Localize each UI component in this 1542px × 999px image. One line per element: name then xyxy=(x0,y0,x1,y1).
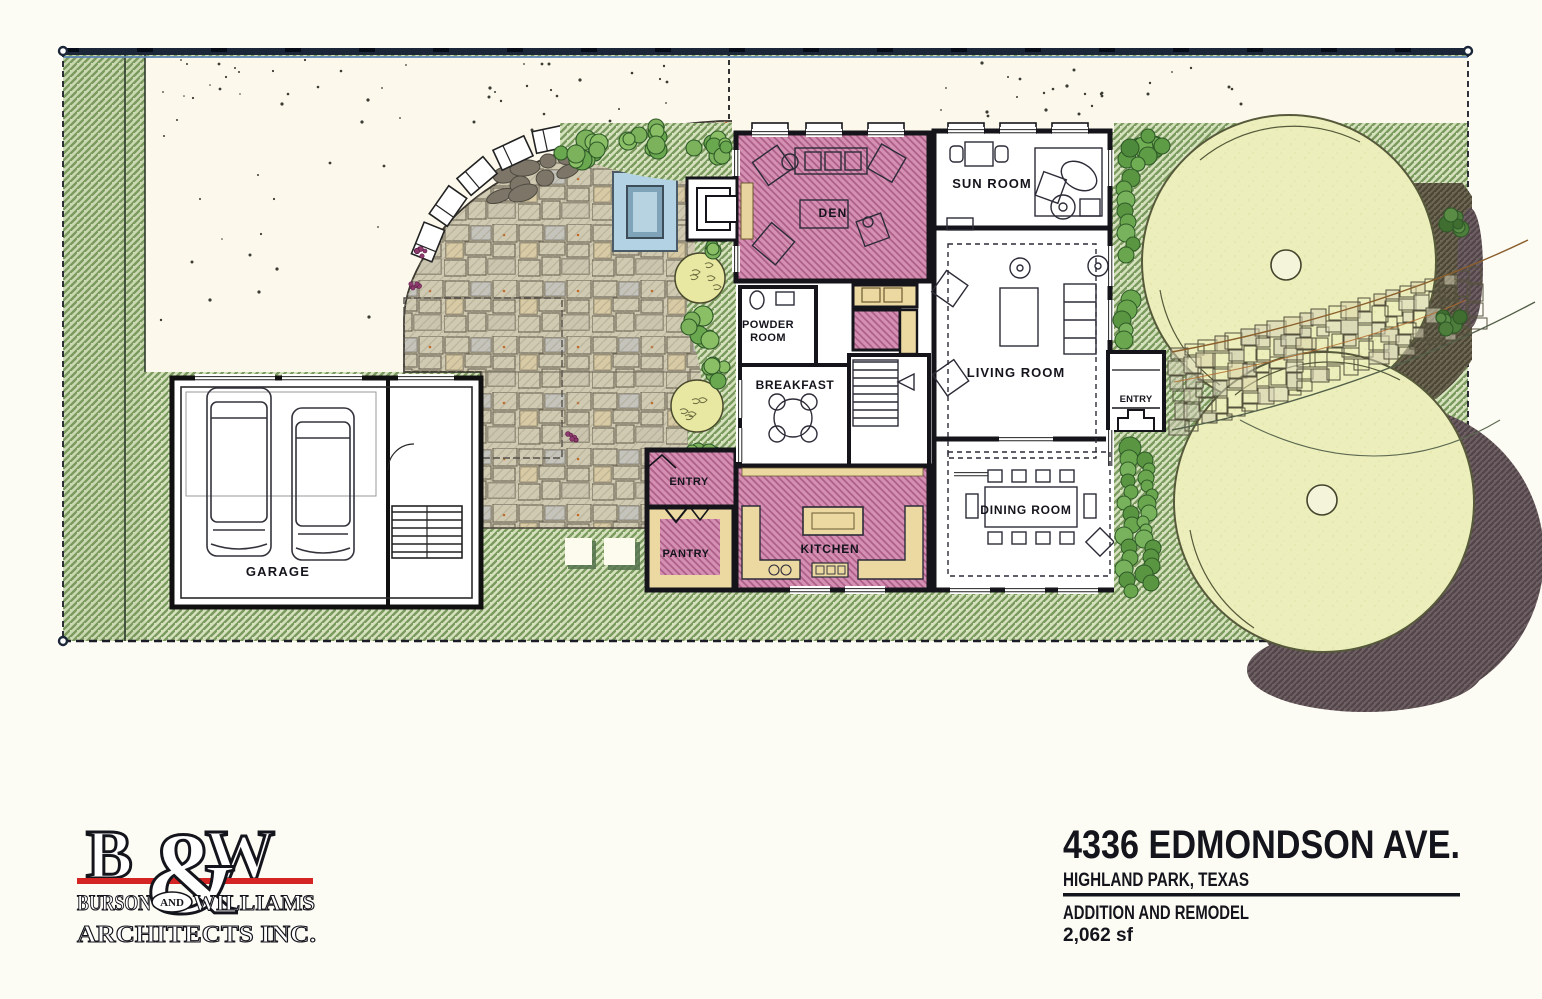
svg-text:SUN ROOM: SUN ROOM xyxy=(952,176,1032,191)
svg-text:AND: AND xyxy=(160,897,184,909)
svg-text:KITCHEN: KITCHEN xyxy=(801,542,860,556)
svg-text:ROOM: ROOM xyxy=(750,332,786,344)
svg-text:ENTRY: ENTRY xyxy=(1120,394,1153,405)
svg-text:DEN: DEN xyxy=(819,206,848,220)
svg-text:GARAGE: GARAGE xyxy=(246,564,310,579)
svg-text:HIGHLAND PARK, TEXAS: HIGHLAND PARK, TEXAS xyxy=(1063,870,1249,891)
svg-text:BURSON: BURSON xyxy=(77,890,151,915)
svg-text:&: & xyxy=(144,808,242,939)
svg-text:PANTRY: PANTRY xyxy=(663,548,710,560)
svg-text:BREAKFAST: BREAKFAST xyxy=(756,378,835,392)
svg-text:WILLIAMS: WILLIAMS xyxy=(193,890,315,915)
svg-text:POWDER: POWDER xyxy=(742,319,794,331)
svg-text:ENTRY: ENTRY xyxy=(669,476,709,488)
svg-text:LIVING ROOM: LIVING ROOM xyxy=(967,365,1065,380)
svg-text:ADDITION AND REMODEL: ADDITION AND REMODEL xyxy=(1063,903,1249,924)
svg-text:DINING ROOM: DINING ROOM xyxy=(980,503,1071,517)
svg-text:4336 EDMONDSON AVE.: 4336 EDMONDSON AVE. xyxy=(1063,823,1460,867)
svg-text:2,062 sf: 2,062 sf xyxy=(1063,925,1134,946)
svg-text:ARCHITECTS INC.: ARCHITECTS INC. xyxy=(77,922,316,948)
